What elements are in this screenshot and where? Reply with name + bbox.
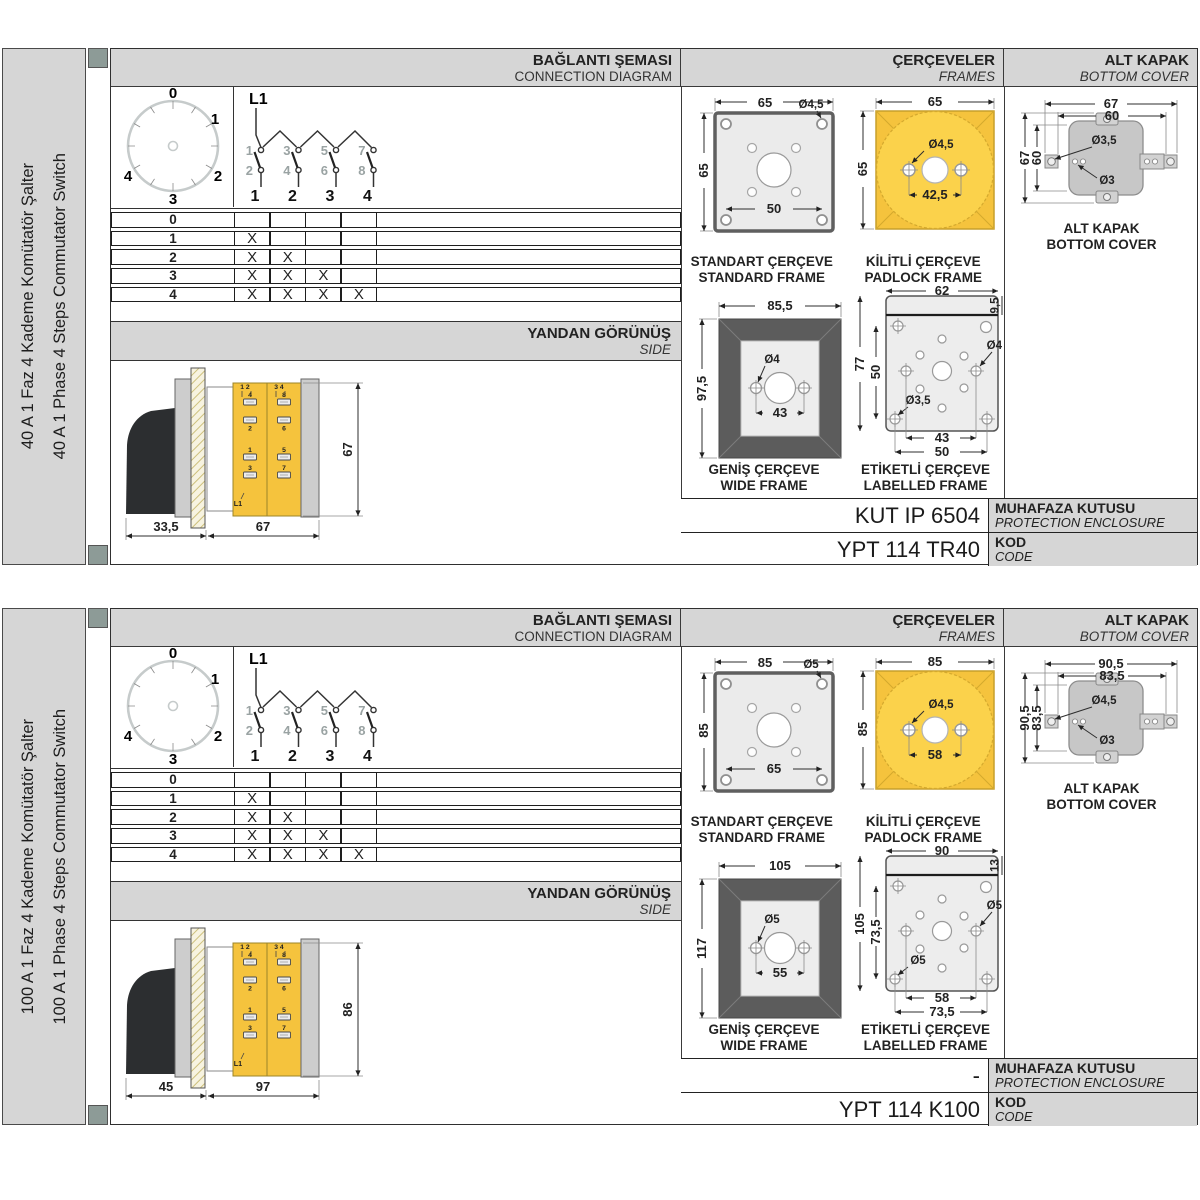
product-module-100a: 100 A 1 Faz 4 Kademe Komütatör Şalter 10… bbox=[0, 608, 1198, 1125]
enclosure-label: MUHAFAZA KUTUSUPROTECTION ENCLOSURE bbox=[988, 498, 1197, 532]
svg-text:3: 3 bbox=[248, 1025, 252, 1032]
svg-text:L1: L1 bbox=[234, 1059, 242, 1068]
mark-cell: X bbox=[234, 828, 271, 844]
dim-inner-pitch: 50 bbox=[868, 365, 883, 379]
table-row: 1X bbox=[111, 231, 681, 247]
handle-plate bbox=[175, 379, 191, 517]
frame-captions-row: STANDART ÇERÇEVESTANDARD FRAME KİLİTLİ Ç… bbox=[681, 814, 1004, 845]
dim-cover-hole2: Ø3 bbox=[1099, 735, 1114, 747]
dim-hole: Ø4,5 bbox=[929, 699, 955, 711]
mark-cell bbox=[340, 268, 377, 284]
dial-drawing: 0 1 2 3 4 bbox=[111, 647, 234, 767]
switch-drawing: L1 1357 2468 1234 bbox=[236, 647, 681, 767]
feed-line bbox=[256, 108, 261, 148]
header-frames: ÇERÇEVELERFRAMES bbox=[681, 609, 1004, 647]
dim-frame-height: 85 bbox=[855, 722, 870, 736]
mark-cell bbox=[269, 791, 306, 807]
product-module-40a: 40 A 1 Faz 4 Kademe Komütatör Şalter 40 … bbox=[0, 48, 1198, 565]
datasheet-panel: BAĞLANTI ŞEMASICONNECTION DIAGRAM ÇERÇEV… bbox=[110, 608, 1198, 1125]
dim-cover-hole1: Ø4,5 bbox=[1092, 695, 1118, 707]
dim-hole: Ø4 bbox=[764, 354, 780, 366]
svg-text:6: 6 bbox=[321, 163, 328, 178]
position-cell: 2 bbox=[111, 809, 235, 825]
rotary-dial: 0 1 2 3 4 bbox=[111, 647, 234, 767]
accent-square-bottom bbox=[88, 1105, 108, 1125]
output-numbers: 1234 bbox=[251, 188, 373, 205]
empty-cell bbox=[376, 287, 681, 303]
input-line-label: L1 bbox=[249, 651, 268, 668]
svg-text:6: 6 bbox=[282, 986, 286, 993]
mark-cell bbox=[234, 212, 271, 228]
standard-frame-caption: STANDART ÇERÇEVESTANDARD FRAME bbox=[681, 254, 843, 285]
mark-cell bbox=[269, 212, 306, 228]
position-cell: 4 bbox=[111, 847, 235, 863]
dim-body-depth: 97 bbox=[256, 1079, 270, 1094]
mark-cell: X bbox=[340, 287, 377, 303]
section-header-row: BAĞLANTI ŞEMASICONNECTION DIAGRAM ÇERÇEV… bbox=[111, 49, 1197, 87]
svg-text:3 4: 3 4 bbox=[274, 944, 284, 951]
svg-text:1 2: 1 2 bbox=[240, 944, 250, 951]
handle bbox=[126, 968, 175, 1074]
switch-drawing: L1 1357 2468 1234 bbox=[236, 87, 681, 207]
mark-cell: X bbox=[234, 791, 271, 807]
dial-center bbox=[169, 142, 178, 151]
dim-frame-height: 65 bbox=[855, 162, 870, 176]
empty-cell bbox=[376, 212, 681, 228]
dim-pitch2: 73,5 bbox=[929, 1004, 954, 1019]
table-row: 1X bbox=[111, 791, 681, 807]
code-value: YPT 114 TR40 bbox=[681, 532, 988, 566]
dim-hole: Ø5 bbox=[803, 659, 819, 671]
dim-frame-height: 117 bbox=[694, 938, 709, 959]
dial-drawing: 0 1 2 3 4 bbox=[111, 87, 234, 207]
mark-cell: X bbox=[234, 268, 271, 284]
svg-text:3: 3 bbox=[326, 748, 335, 765]
enclosure-value: KUT IP 6504 bbox=[681, 498, 988, 532]
spacer bbox=[207, 947, 233, 1071]
table-row: 3XXX bbox=[111, 268, 681, 284]
dim-pitch: 65 bbox=[767, 761, 781, 776]
svg-text:7: 7 bbox=[358, 143, 365, 158]
dial-pos-3: 3 bbox=[169, 751, 177, 767]
mark-cell: X bbox=[234, 809, 271, 825]
position-cell: 0 bbox=[111, 212, 235, 228]
table-row: 2XX bbox=[111, 809, 681, 825]
input-line-label: L1 bbox=[249, 91, 268, 108]
svg-text:3: 3 bbox=[283, 703, 290, 718]
svg-text:2: 2 bbox=[288, 748, 297, 765]
standard-frame-drawing: 65 Ø4,5 65 50 bbox=[689, 89, 845, 253]
mark-cell bbox=[340, 249, 377, 265]
dim-hole-corner: Ø3,5 bbox=[906, 395, 932, 407]
accent-square-bottom bbox=[88, 545, 108, 565]
table-row: 2XX bbox=[111, 249, 681, 265]
mark-cell: X bbox=[269, 828, 306, 844]
labelled-frame-drawing: 62 9,5 77 50 Ø4 Ø3,5 43 50 bbox=[846, 285, 1004, 461]
labelled-frame-drawing: 90 13 105 73,5 Ø5 Ø5 58 73,5 bbox=[846, 845, 1004, 1021]
wide-frame-caption: GENİŞ ÇERÇEVEWIDE FRAME bbox=[681, 462, 847, 493]
dim-cover-h2: 83,5 bbox=[1029, 705, 1044, 730]
svg-text:4: 4 bbox=[248, 392, 252, 399]
svg-text:8: 8 bbox=[282, 392, 286, 399]
mark-cell: X bbox=[269, 268, 306, 284]
empty-cell bbox=[376, 268, 681, 284]
column-divider bbox=[681, 647, 682, 1058]
mark-cell bbox=[340, 231, 377, 247]
dim-pitch1: 43 bbox=[935, 430, 949, 445]
wide-frame-drawing: Ø5 55 105 117 bbox=[689, 853, 847, 1021]
dial-pos-1: 1 bbox=[211, 111, 219, 128]
handle bbox=[126, 408, 175, 514]
empty-cell bbox=[376, 828, 681, 844]
mark-cell: X bbox=[234, 847, 271, 863]
dim-pitch: 50 bbox=[767, 201, 781, 216]
svg-text:4: 4 bbox=[363, 188, 372, 205]
svg-text:2: 2 bbox=[246, 723, 253, 738]
code-label: KODCODE bbox=[988, 1092, 1197, 1126]
bridge-links bbox=[263, 131, 372, 148]
dial-pos-0: 0 bbox=[169, 647, 177, 662]
padlock-frame-caption: KİLİTLİ ÇERÇEVEPADLOCK FRAME bbox=[843, 814, 1005, 845]
side-view-header: YANDAN GÖRÜNÜŞSIDE bbox=[111, 881, 681, 921]
svg-text:3: 3 bbox=[283, 143, 290, 158]
product-title-english: 40 A 1 Phase 4 Steps Commutator Switch bbox=[51, 153, 70, 459]
svg-text:8: 8 bbox=[282, 952, 286, 959]
switch-blades bbox=[255, 712, 373, 728]
mark-cell bbox=[269, 231, 306, 247]
mark-cell: X bbox=[305, 847, 342, 863]
product-title-turkish: 100 A 1 Faz 4 Kademe Komütatör Şalter bbox=[19, 719, 38, 1014]
dim-body-depth: 67 bbox=[256, 519, 270, 534]
bottom-cover-drawing: 90,5 83,5 90,5 83,5 Ø4,5 Ø3 bbox=[1007, 651, 1197, 777]
empty-cell bbox=[376, 249, 681, 265]
svg-text:1: 1 bbox=[248, 1007, 252, 1014]
dim-hole: Ø5 bbox=[764, 914, 780, 926]
standard-frame-caption: STANDART ÇERÇEVESTANDARD FRAME bbox=[681, 814, 843, 845]
column-divider bbox=[681, 87, 682, 498]
side-view-header: YANDAN GÖRÜNÜŞSIDE bbox=[111, 321, 681, 361]
rear-plate bbox=[301, 939, 319, 1077]
dial-pos-3: 3 bbox=[169, 191, 177, 207]
mark-cell bbox=[305, 772, 342, 788]
mark-cell bbox=[269, 772, 306, 788]
labelled-frame-caption: ETİKETLİ ÇERÇEVELABELLED FRAME bbox=[847, 1022, 1004, 1053]
svg-text:7: 7 bbox=[282, 1025, 286, 1032]
dim-cover-h2: 60 bbox=[1029, 151, 1044, 165]
side-view-drawing: 1 23 4 42 86 13 57 L1 86 45 97 bbox=[111, 922, 681, 1126]
mark-cell: X bbox=[269, 809, 306, 825]
wide-frame-drawing: Ø4 43 85,5 97,5 bbox=[689, 293, 847, 461]
dim-frame-width: 65 bbox=[758, 95, 772, 110]
mark-cell bbox=[340, 791, 377, 807]
mark-cell bbox=[340, 828, 377, 844]
svg-text:2: 2 bbox=[288, 188, 297, 205]
accent-square-top bbox=[88, 608, 108, 628]
product-title-english: 100 A 1 Phase 4 Steps Commutator Switch bbox=[51, 709, 70, 1025]
dim-hole-side: Ø4 bbox=[987, 340, 1003, 352]
position-cell: 3 bbox=[111, 268, 235, 284]
padlock-frame-caption: KİLİTLİ ÇERÇEVEPADLOCK FRAME bbox=[843, 254, 1005, 285]
svg-text:3: 3 bbox=[248, 465, 252, 472]
dim-height: 86 bbox=[340, 1002, 355, 1016]
dim-handle-depth: 33,5 bbox=[153, 519, 178, 534]
empty-cell bbox=[376, 231, 681, 247]
output-lines bbox=[261, 173, 374, 187]
table-row: 0 bbox=[111, 772, 681, 788]
empty-cell bbox=[376, 772, 681, 788]
mark-cell: X bbox=[234, 249, 271, 265]
svg-text:2: 2 bbox=[248, 426, 252, 433]
mark-cell bbox=[305, 212, 342, 228]
dim-frame-height: 97,5 bbox=[694, 376, 709, 401]
feed-line bbox=[256, 668, 261, 708]
dim-cover-hole1: Ø3,5 bbox=[1092, 135, 1118, 147]
bridge-links bbox=[263, 691, 372, 708]
svg-text:8: 8 bbox=[358, 163, 365, 178]
bottom-cover-caption: ALT KAPAKBOTTOM COVER bbox=[1004, 221, 1199, 252]
empty-cell bbox=[376, 809, 681, 825]
product-title-sidebar: 100 A 1 Faz 4 Kademe Komütatör Şalter 10… bbox=[2, 608, 86, 1125]
dim-cover-w2: 60 bbox=[1105, 108, 1119, 123]
table-row: 3XXX bbox=[111, 828, 681, 844]
dim-frame-width: 105 bbox=[769, 858, 791, 873]
svg-text:6: 6 bbox=[282, 426, 286, 433]
position-cell: 2 bbox=[111, 249, 235, 265]
dim-frame-height: 85 bbox=[696, 723, 711, 737]
svg-text:6: 6 bbox=[321, 723, 328, 738]
dim-pitch1: 58 bbox=[935, 990, 949, 1005]
dim-pitch: 58 bbox=[928, 747, 942, 762]
accent-square-top bbox=[88, 48, 108, 68]
code-value: YPT 114 K100 bbox=[681, 1092, 988, 1126]
dial-pos-1: 1 bbox=[211, 671, 219, 688]
dim-label-band: 9,5 bbox=[990, 297, 1002, 314]
table-row: 4XXXX bbox=[111, 847, 681, 863]
svg-text:3: 3 bbox=[326, 188, 335, 205]
position-cell: 3 bbox=[111, 828, 235, 844]
svg-text:1: 1 bbox=[251, 748, 260, 765]
svg-text:7: 7 bbox=[282, 465, 286, 472]
labelled-frame-caption: ETİKETLİ ÇERÇEVELABELLED FRAME bbox=[847, 462, 1004, 493]
svg-text:1: 1 bbox=[248, 447, 252, 454]
dim-hole: Ø4,5 bbox=[929, 139, 955, 151]
dim-handle-depth: 45 bbox=[159, 1079, 173, 1094]
dim-height: 67 bbox=[340, 442, 355, 456]
frame-captions-row: STANDART ÇERÇEVESTANDARD FRAME KİLİTLİ Ç… bbox=[681, 254, 1004, 285]
position-cell: 1 bbox=[111, 791, 235, 807]
empty-cell bbox=[376, 791, 681, 807]
mark-cell: X bbox=[305, 828, 342, 844]
dim-frame-height: 77 bbox=[852, 357, 867, 371]
accent-strip bbox=[88, 48, 108, 565]
dim-frame-width: 85,5 bbox=[767, 298, 792, 313]
wide-frame-caption: GENİŞ ÇERÇEVEWIDE FRAME bbox=[681, 1022, 847, 1053]
dim-frame-width: 90 bbox=[935, 845, 949, 858]
dial-pos-2: 2 bbox=[214, 168, 222, 185]
column-divider bbox=[1004, 87, 1005, 498]
standard-frame-drawing: 85 Ø5 85 65 bbox=[689, 649, 845, 813]
svg-text:4: 4 bbox=[283, 163, 291, 178]
header-frames: ÇERÇEVELERFRAMES bbox=[681, 49, 1004, 87]
dim-frame-width: 85 bbox=[928, 654, 942, 669]
header-connection-diagram: BAĞLANTI ŞEMASICONNECTION DIAGRAM bbox=[111, 609, 681, 647]
mark-cell: X bbox=[269, 847, 306, 863]
section-header-row: BAĞLANTI ŞEMASICONNECTION DIAGRAM ÇERÇEV… bbox=[111, 609, 1197, 647]
mark-cell: X bbox=[340, 847, 377, 863]
dial-pos-2: 2 bbox=[214, 728, 222, 745]
mark-cell bbox=[340, 212, 377, 228]
dim-label-band: 13 bbox=[990, 859, 1002, 872]
mark-cell: X bbox=[234, 231, 271, 247]
dial-pos-0: 0 bbox=[169, 87, 177, 102]
mounting-panel bbox=[191, 928, 205, 1088]
svg-text:4: 4 bbox=[363, 748, 372, 765]
datasheet-panel: BAĞLANTI ŞEMASICONNECTION DIAGRAM ÇERÇEV… bbox=[110, 48, 1198, 565]
bottom-cover-drawing: 67 60 67 60 Ø3,5 Ø3 bbox=[1007, 91, 1197, 217]
dim-frame-width: 65 bbox=[928, 94, 942, 109]
column-divider bbox=[1004, 647, 1005, 1058]
svg-text:3 4: 3 4 bbox=[274, 384, 284, 391]
svg-text:2: 2 bbox=[248, 986, 252, 993]
switch-schematic: L1 1357 2468 1234 bbox=[236, 87, 681, 207]
enclosure-value: - bbox=[681, 1058, 988, 1092]
mark-cell: X bbox=[305, 268, 342, 284]
output-lines bbox=[261, 733, 374, 747]
position-cell: 4 bbox=[111, 287, 235, 303]
dim-inner-pitch: 73,5 bbox=[868, 919, 883, 944]
switch-blades bbox=[255, 152, 373, 168]
svg-text:5: 5 bbox=[282, 1007, 286, 1014]
dial-pos-4: 4 bbox=[124, 728, 133, 745]
switch-schematic: L1 1357 2468 1234 bbox=[236, 647, 681, 767]
dim-pitch2: 50 bbox=[935, 444, 949, 459]
position-cell: 0 bbox=[111, 772, 235, 788]
mark-cell: X bbox=[269, 249, 306, 265]
svg-text:8: 8 bbox=[358, 723, 365, 738]
dim-pitch: 55 bbox=[773, 965, 787, 980]
accent-strip bbox=[88, 608, 108, 1125]
output-numbers: 1234 bbox=[251, 748, 373, 765]
position-cell: 1 bbox=[111, 231, 235, 247]
mark-cell bbox=[305, 791, 342, 807]
mark-cell bbox=[305, 809, 342, 825]
dim-frame-width: 85 bbox=[758, 655, 772, 670]
header-bottom-cover: ALT KAPAKBOTTOM COVER bbox=[1004, 609, 1197, 647]
handle-plate bbox=[175, 939, 191, 1077]
rear-plate bbox=[301, 379, 319, 517]
dim-cover-w2: 83,5 bbox=[1099, 668, 1124, 683]
enclosure-label: MUHAFAZA KUTUSUPROTECTION ENCLOSURE bbox=[988, 1058, 1197, 1092]
mark-cell bbox=[340, 809, 377, 825]
connection-diagram-area: 0 1 2 3 4 L1 bbox=[111, 647, 681, 769]
position-table: 0 1X 2XX 3XXX 4XXXX bbox=[111, 212, 681, 305]
mark-cell bbox=[305, 249, 342, 265]
svg-text:1: 1 bbox=[251, 188, 260, 205]
dial-pos-4: 4 bbox=[124, 168, 133, 185]
mark-cell: X bbox=[234, 287, 271, 303]
connection-diagram-area: 0 1 2 3 4 L1 bbox=[111, 87, 681, 209]
spacer bbox=[207, 387, 233, 511]
svg-text:4: 4 bbox=[248, 952, 252, 959]
mark-cell bbox=[340, 772, 377, 788]
mark-cell bbox=[234, 772, 271, 788]
svg-text:7: 7 bbox=[358, 703, 365, 718]
svg-text:5: 5 bbox=[282, 447, 286, 454]
dim-frame-width: 62 bbox=[935, 285, 949, 298]
svg-text:5: 5 bbox=[321, 703, 328, 718]
rotary-dial: 0 1 2 3 4 bbox=[111, 87, 234, 207]
dim-cover-hole2: Ø3 bbox=[1099, 175, 1114, 187]
position-table: 0 1X 2XX 3XXX 4XXXX bbox=[111, 772, 681, 865]
table-row: 4XXXX bbox=[111, 287, 681, 303]
dim-pitch: 42,5 bbox=[922, 187, 947, 202]
svg-text:1 2: 1 2 bbox=[240, 384, 250, 391]
svg-text:4: 4 bbox=[283, 723, 291, 738]
dim-frame-height: 105 bbox=[852, 913, 867, 935]
dim-hole-corner: Ø5 bbox=[910, 955, 926, 967]
svg-text:2: 2 bbox=[246, 163, 253, 178]
header-connection-diagram: BAĞLANTI ŞEMASICONNECTION DIAGRAM bbox=[111, 49, 681, 87]
padlock-frame-drawing: 65 65 Ø4,5 42,5 bbox=[848, 89, 1002, 253]
side-view-drawing: 1 23 4 42 86 13 57 L1 67 33,5 67 bbox=[111, 362, 681, 566]
svg-text:1: 1 bbox=[246, 703, 253, 718]
dial-center bbox=[169, 702, 178, 711]
empty-cell bbox=[376, 847, 681, 863]
product-title-sidebar: 40 A 1 Faz 4 Kademe Komütatör Şalter 40 … bbox=[2, 48, 86, 565]
svg-text:1: 1 bbox=[246, 143, 253, 158]
mark-cell bbox=[305, 231, 342, 247]
svg-text:5: 5 bbox=[321, 143, 328, 158]
header-bottom-cover: ALT KAPAKBOTTOM COVER bbox=[1004, 49, 1197, 87]
dim-pitch: 43 bbox=[773, 405, 787, 420]
svg-text:L1: L1 bbox=[234, 499, 242, 508]
mark-cell: X bbox=[269, 287, 306, 303]
bottom-cover-caption: ALT KAPAKBOTTOM COVER bbox=[1004, 781, 1199, 812]
dim-hole-side: Ø5 bbox=[987, 900, 1003, 912]
product-title-turkish: 40 A 1 Faz 4 Kademe Komütatör Şalter bbox=[19, 163, 38, 449]
table-row: 0 bbox=[111, 212, 681, 228]
dim-hole: Ø4,5 bbox=[799, 99, 825, 111]
dim-frame-height: 65 bbox=[696, 163, 711, 177]
mark-cell: X bbox=[305, 287, 342, 303]
code-label: KODCODE bbox=[988, 532, 1197, 566]
padlock-frame-drawing: 85 85 Ø4,5 58 bbox=[848, 649, 1002, 813]
mounting-panel bbox=[191, 368, 205, 528]
